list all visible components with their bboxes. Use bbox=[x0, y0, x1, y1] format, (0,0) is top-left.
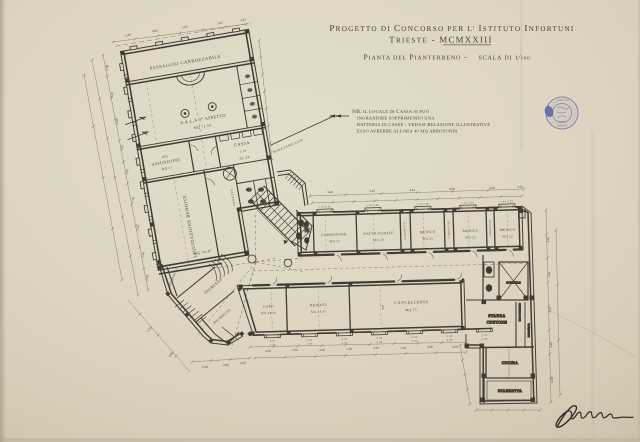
svg-text:4.90: 4.90 bbox=[412, 340, 418, 343]
svg-text:4.60: 4.60 bbox=[489, 186, 495, 190]
svg-text:PROGETTO DI CONCORSO PER L: PROGETTO DI CONCORSO PER L’ ISTITUTO INF… bbox=[329, 23, 574, 33]
svg-text:CUCINA: CUCINA bbox=[502, 361, 519, 365]
svg-text:MQ 77-: MQ 77- bbox=[405, 308, 418, 312]
svg-text:GABINETTO: GABINETTO bbox=[489, 219, 492, 237]
svg-text:1.44 2.20: 1.44 2.20 bbox=[461, 201, 474, 204]
svg-text:MQ 28.00: MQ 28.00 bbox=[261, 311, 277, 315]
svg-text:4.20: 4.20 bbox=[319, 348, 325, 352]
svg-text:3.10: 3.10 bbox=[548, 307, 553, 313]
svg-text:2.00: 2.00 bbox=[270, 340, 276, 343]
svg-text:3.95: 3.95 bbox=[550, 377, 555, 383]
svg-text:STANZETTA: STANZETTA bbox=[498, 389, 522, 393]
svg-text:TRIESTE: TRIESTE bbox=[557, 125, 568, 128]
svg-text:MQ 22: MQ 22 bbox=[422, 236, 433, 240]
svg-text:0.30: 0.30 bbox=[202, 365, 208, 369]
svg-text:4.90: 4.90 bbox=[447, 339, 453, 342]
svg-text:CANCELLERIA: CANCELLERIA bbox=[394, 299, 429, 305]
svg-text:3.43: 3.43 bbox=[240, 18, 247, 23]
svg-text:3.43: 3.43 bbox=[546, 237, 551, 243]
svg-text:MQ 22: MQ 22 bbox=[465, 235, 476, 239]
svg-text:2.00: 2.00 bbox=[377, 337, 383, 340]
svg-text:DATTILOGRAFE: DATTILOGRAFE bbox=[363, 231, 393, 236]
svg-text:2.00: 2.00 bbox=[446, 335, 452, 338]
svg-text:5.95: 5.95 bbox=[182, 25, 189, 30]
svg-text:4.90: 4.90 bbox=[342, 342, 348, 345]
svg-text:3.43: 3.43 bbox=[217, 21, 224, 26]
svg-text:2.40: 2.40 bbox=[125, 33, 132, 38]
svg-text:2.00: 2.00 bbox=[307, 339, 313, 342]
svg-text:2.00: 2.00 bbox=[411, 336, 417, 339]
svg-text:3.40: 3.40 bbox=[327, 190, 333, 194]
svg-text:4.20: 4.20 bbox=[427, 345, 433, 349]
svg-text:4.00: 4.00 bbox=[152, 29, 159, 34]
svg-text:3.50: 3.50 bbox=[517, 185, 523, 189]
svg-text:4.40: 4.40 bbox=[549, 342, 554, 348]
svg-text:MEDICO: MEDICO bbox=[463, 229, 479, 233]
svg-text:CORTILE: CORTILE bbox=[506, 281, 521, 285]
svg-text:STANZA: STANZA bbox=[488, 314, 505, 318]
svg-text:3.50: 3.50 bbox=[373, 346, 379, 350]
svg-text:1.44 2.20: 1.44 2.20 bbox=[366, 204, 379, 207]
svg-text:MQ 20: MQ 20 bbox=[373, 238, 384, 242]
svg-text:4.90: 4.90 bbox=[307, 343, 313, 346]
svg-text:MQ 31: MQ 31 bbox=[329, 239, 340, 243]
svg-text:ISTITUTO: ISTITUTO bbox=[557, 99, 569, 102]
svg-text:RIPOSTIGLIO: RIPOSTIGLIO bbox=[519, 303, 522, 322]
svg-text:5.45: 5.45 bbox=[547, 272, 552, 278]
svg-text:1.44 2.20: 1.44 2.20 bbox=[318, 205, 331, 208]
svg-text:1.50: 1.50 bbox=[346, 347, 352, 351]
svg-text:4.80: 4.80 bbox=[449, 187, 455, 191]
svg-text:TRIESTE - MCMXXIII: TRIESTE - MCMXXIII bbox=[389, 35, 492, 45]
svg-text:4.90: 4.90 bbox=[377, 341, 383, 344]
svg-text:4.50: 4.50 bbox=[452, 345, 458, 349]
svg-text:MEDICO: MEDICO bbox=[420, 230, 436, 234]
svg-text:ESSO AVREBBE ALLORA 40 MQ AR: ESSO AVREBBE ALLORA 40 MQ ARROTONDI bbox=[357, 129, 458, 134]
svg-text:1.44 2.20: 1.44 2.20 bbox=[416, 202, 429, 205]
svg-text:1.50: 1.50 bbox=[400, 346, 406, 350]
svg-text:2.00: 2.00 bbox=[481, 334, 487, 337]
svg-text:BATTERIA DI CASSE - VEDASI REL: BATTERIA DI CASSE - VEDASI RELAZIONE ILL… bbox=[357, 122, 490, 127]
svg-text:GABINETTO: GABINETTO bbox=[447, 220, 450, 238]
svg-text:DISPENSA: DISPENSA bbox=[528, 323, 531, 337]
svg-text:1.44 2.20: 1.44 2.20 bbox=[500, 200, 513, 203]
svg-text:CUSTODE: CUSTODE bbox=[487, 321, 508, 325]
svg-text:4.20: 4.20 bbox=[265, 349, 271, 353]
svg-text:CORRISPOND.: CORRISPOND. bbox=[321, 232, 348, 237]
svg-text:2.00: 2.00 bbox=[342, 338, 348, 341]
svg-text:2.80: 2.80 bbox=[223, 363, 229, 367]
svg-text:1.30: 1.30 bbox=[292, 348, 298, 352]
svg-text:4.90: 4.90 bbox=[482, 338, 488, 341]
svg-text:3.44: 3.44 bbox=[409, 188, 415, 192]
svg-text:GABINETTO: GABINETTO bbox=[403, 222, 406, 240]
svg-text:CAPO: CAPO bbox=[263, 304, 274, 308]
svg-text:INGRANDIRE SOPPRIMENDO UNA: INGRANDIRE SOPPRIMENDO UNA bbox=[357, 116, 435, 121]
svg-text:4.90: 4.90 bbox=[382, 304, 385, 310]
svg-text:3.10: 3.10 bbox=[369, 189, 375, 193]
svg-text:4.50: 4.50 bbox=[240, 361, 246, 365]
